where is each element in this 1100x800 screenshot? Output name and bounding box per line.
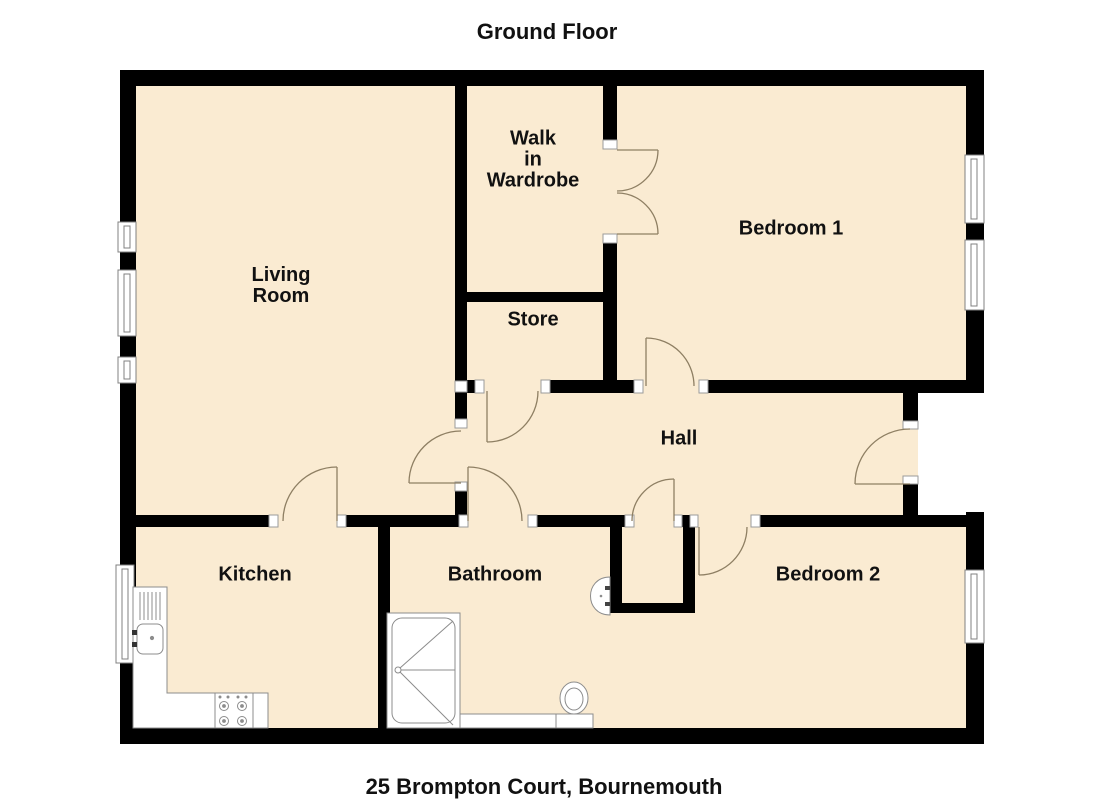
room-label-walk-in-wardrobe: Walk in Wardrobe [487,129,580,192]
wall-top [120,70,984,86]
jamb [455,381,467,392]
wall-store-bottom-b [550,380,634,393]
floorplan-page: Ground Floor [0,0,1100,800]
bedroom2-window [965,570,984,643]
wall-cupboard-left [610,527,622,613]
room-label-bedroom-2: Bedroom 2 [776,565,880,586]
wall-livingroom-divider-upper [455,86,467,419]
jamb [603,140,617,149]
living-room-window-2 [118,270,136,336]
jamb [674,515,682,527]
jamb [699,380,708,393]
room-label-store: Store [507,310,558,331]
jamb [337,515,346,527]
room-label-bedroom-1: Bedroom 1 [739,219,843,240]
floorplan-canvas [0,0,1100,800]
room-label-kitchen: Kitchen [218,565,291,586]
wall-cupboard-top-stub [682,515,690,527]
wall-wardrobe-right-lower [603,234,617,380]
living-room-window-3 [118,357,136,383]
living-room-window-1 [118,222,136,252]
room-label-bathroom: Bathroom [448,565,542,586]
jamb [475,380,484,393]
jamb [269,515,278,527]
jamb [751,515,760,527]
jamb [541,380,550,393]
wall-bedroom1-bottom [708,380,966,393]
room-label-living-room: Living Room [252,265,311,307]
wall-right-upper [966,70,984,393]
jamb [903,476,918,484]
jamb [903,421,918,429]
jamb [690,515,698,527]
wall-wardrobe-store-divider [455,292,617,302]
jamb [634,380,643,393]
kitchen-window [116,565,134,663]
wall-kitchen-top-b [346,515,459,527]
jamb [603,234,617,243]
bedroom1-window-2 [965,240,984,310]
bedroom1-window-1 [965,155,984,223]
jamb [455,419,467,428]
wall-kitchen-top-a [136,515,269,527]
wall-cupboard-bottom [610,603,695,613]
wall-bedroom2-top [760,515,966,527]
wall-bathroom-top [537,515,625,527]
jamb [528,515,537,527]
wall-bottom [120,728,984,744]
bath-icon [387,613,460,728]
page-footer-address: 25 Brompton Court, Bournemouth [366,774,723,800]
wall-cupboard-right [683,527,695,613]
bath-shelf [460,714,557,728]
wall-entrance-upper [903,393,918,421]
wall-entrance-lower [903,484,918,515]
entrance-recess [918,393,984,515]
room-label-hall: Hall [661,429,698,450]
jamb [459,515,468,527]
